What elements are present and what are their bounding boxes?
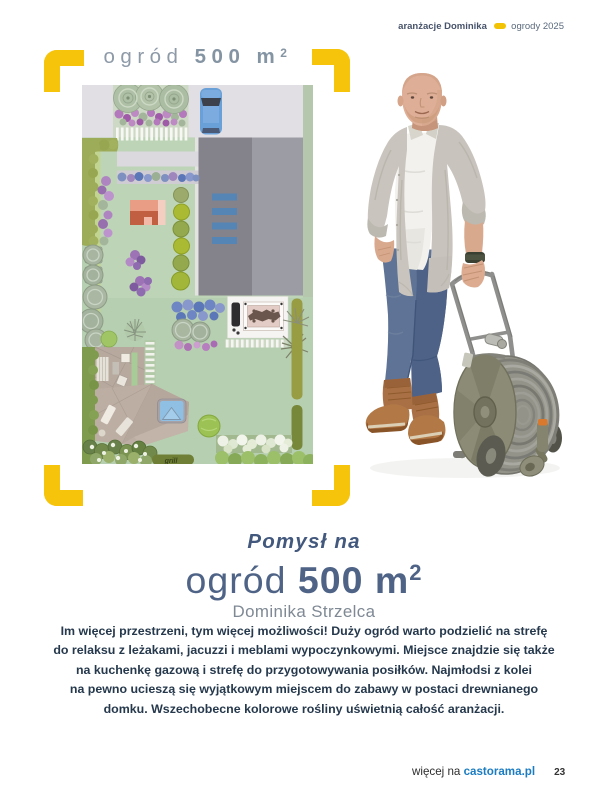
svg-text:grill: grill xyxy=(163,457,178,464)
